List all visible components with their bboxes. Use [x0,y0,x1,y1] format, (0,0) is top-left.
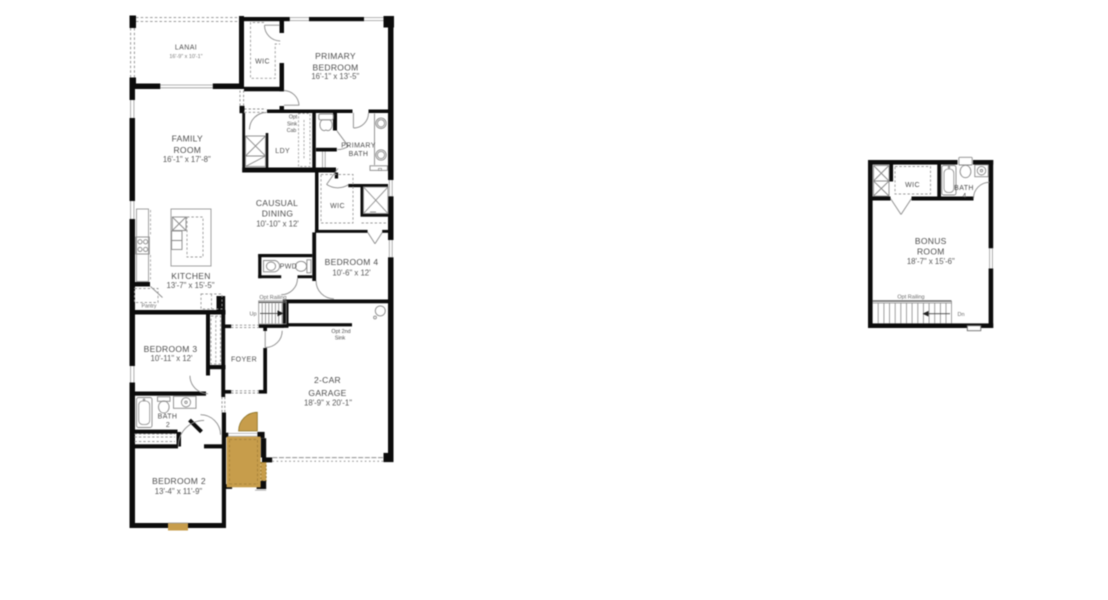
svg-text:WIC: WIC [330,203,345,210]
svg-text:Opt Railing: Opt Railing [897,295,924,301]
svg-text:16'-1" x 13'-5": 16'-1" x 13'-5" [311,72,359,81]
svg-text:10'-10" x 12': 10'-10" x 12' [256,219,299,228]
svg-text:PRIMARY: PRIMARY [341,143,376,150]
svg-text:BATH: BATH [349,151,369,158]
svg-text:LANAI: LANAI [175,45,197,52]
svg-text:LDY: LDY [275,148,290,155]
svg-text:BATH: BATH [954,185,974,192]
svg-text:WIC: WIC [905,182,920,189]
svg-text:Dn: Dn [958,312,965,318]
svg-text:BEDROOM 2: BEDROOM 2 [152,476,206,486]
svg-text:BEDROOM 3: BEDROOM 3 [144,344,198,354]
svg-text:13'-4" x 11'-9": 13'-4" x 11'-9" [155,487,203,496]
svg-text:ROOM: ROOM [173,145,201,155]
svg-text:PWD: PWD [280,264,298,271]
svg-text:PRIMARY: PRIMARY [315,51,356,61]
svg-text:DINING: DINING [262,209,294,219]
svg-text:18'-7" x 15'-6": 18'-7" x 15'-6" [907,257,955,266]
svg-text:4: 4 [962,193,966,200]
svg-text:Cab: Cab [287,128,297,134]
svg-text:KITCHEN: KITCHEN [171,271,210,281]
svg-text:Opt Railing: Opt Railing [259,295,286,301]
svg-text:18'-9" x 20'-1": 18'-9" x 20'-1" [304,398,352,407]
svg-text:Opt 2nd: Opt 2nd [331,329,350,335]
svg-text:Opt: Opt [289,114,298,120]
svg-text:2-CAR: 2-CAR [314,375,341,385]
svg-text:Sink: Sink [335,336,346,342]
svg-text:GARAGE: GARAGE [308,388,346,398]
svg-text:FOYER: FOYER [231,357,257,364]
svg-text:ROOM: ROOM [917,247,945,257]
svg-text:16'-9" x 10'-1": 16'-9" x 10'-1" [169,54,202,60]
svg-text:Up: Up [249,312,256,318]
svg-text:BEDROOM: BEDROOM [312,62,358,72]
svg-text:BEDROOM 4: BEDROOM 4 [325,257,379,267]
svg-text:BONUS: BONUS [915,236,947,246]
svg-text:WIC: WIC [255,59,270,66]
svg-text:FAMILY: FAMILY [172,134,203,144]
svg-text:2: 2 [166,422,170,429]
svg-text:Sink: Sink [287,121,297,127]
svg-text:16'-1" x 17'-8": 16'-1" x 17'-8" [163,155,211,164]
svg-text:13'-7" x 15'-5": 13'-7" x 15'-5" [167,281,215,290]
svg-text:10'-11" x 12': 10'-11" x 12' [150,354,193,363]
svg-text:CAUSUAL: CAUSUAL [256,198,298,208]
svg-text:10'-6" x 12': 10'-6" x 12' [332,268,371,277]
svg-text:BATH: BATH [158,414,178,421]
svg-text:Pantry: Pantry [142,304,157,310]
